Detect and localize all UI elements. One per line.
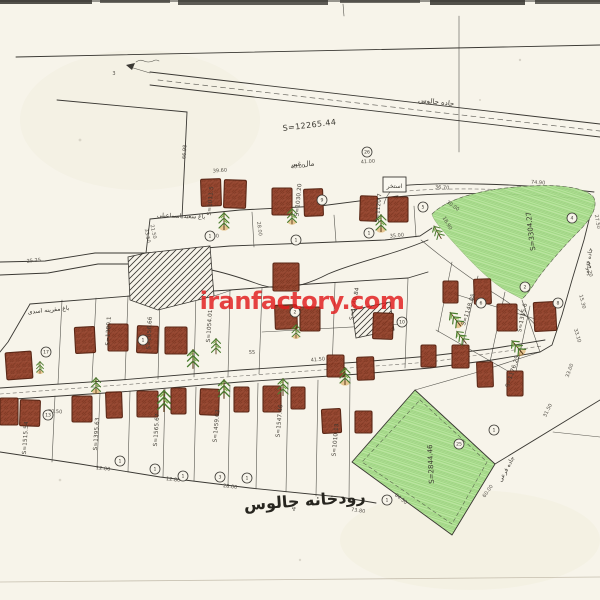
- building: [477, 362, 494, 388]
- building: [165, 327, 187, 354]
- plot-number-text: 1: [493, 428, 496, 434]
- dimension-label: 3: [112, 71, 115, 77]
- others-property-label: مال غیر: [291, 160, 315, 168]
- plot-number: 1: [382, 495, 392, 505]
- building: [373, 313, 394, 340]
- plot-number: 8: [553, 298, 563, 308]
- building: [224, 180, 247, 209]
- plot-number-text: 2: [524, 285, 527, 291]
- plot-number: 2: [520, 282, 530, 292]
- plot-number: 1: [150, 464, 160, 474]
- plot-number: 3: [215, 472, 225, 482]
- watermark-text: iranfactory.com: [200, 287, 405, 315]
- plot-number-text: 17: [43, 350, 49, 356]
- scanned-cadastral-map: استخر 66.9821.5039.6040.0041.0036.7074.9…: [0, 0, 600, 600]
- plot-number-text: 1: [295, 238, 298, 244]
- plot-number: 9: [317, 195, 327, 205]
- plot-number: 4: [567, 213, 577, 223]
- plot-number: 13: [43, 410, 53, 420]
- building: [74, 326, 95, 353]
- plot-number-text: 25: [456, 442, 462, 448]
- plot-number: 25: [454, 439, 464, 449]
- dimension-label: 41.00: [361, 159, 376, 166]
- plot-number-text: 1: [386, 498, 389, 504]
- building: [497, 304, 517, 331]
- building: [234, 387, 249, 412]
- plot-number-text: 1: [142, 338, 145, 344]
- plot-number: 5: [418, 202, 428, 212]
- building: [171, 388, 186, 414]
- plot-number: 6: [476, 298, 486, 308]
- building: [272, 188, 292, 215]
- plot-number: 1: [489, 425, 499, 435]
- plot-number-text: 3: [219, 475, 222, 481]
- building: [421, 345, 436, 367]
- dimension-label: 36.70: [435, 185, 450, 192]
- plot-number-text: 1: [368, 231, 371, 237]
- dimension-label: 35.00: [390, 232, 405, 239]
- building: [327, 355, 344, 377]
- plot-number-text: 1: [246, 476, 249, 482]
- dimension-label: 66.98: [182, 145, 189, 160]
- plot-number-text: 8: [557, 301, 560, 307]
- map-canvas: استخر 66.9821.5039.6040.0041.0036.7074.9…: [0, 0, 600, 600]
- pool-box: استخر: [383, 177, 406, 192]
- building: [357, 357, 375, 381]
- dimension-label: 74.90: [531, 180, 546, 187]
- plot-number-text: 6: [480, 301, 483, 307]
- building: [355, 411, 372, 433]
- building: [5, 351, 33, 380]
- plot-number: 1: [205, 231, 215, 241]
- plot-number: 1: [364, 228, 374, 238]
- plot-number: 26: [362, 147, 372, 157]
- dimension-label: 39.60: [213, 168, 228, 175]
- plot-number-text: 1: [209, 234, 212, 240]
- plot-number-text: 1: [119, 459, 122, 465]
- plot-number-text: 1: [154, 467, 157, 473]
- plot-number-text: 10: [399, 320, 405, 326]
- plot-number-text: 1: [182, 474, 185, 480]
- plot-number-text: 5: [422, 205, 425, 211]
- plot-number-text: 13: [45, 413, 51, 419]
- building: [0, 398, 18, 425]
- building: [452, 345, 469, 368]
- plot-number: 1: [291, 235, 301, 245]
- pool-label: استخر: [386, 183, 403, 190]
- plot-number-text: 4: [571, 216, 574, 222]
- building: [533, 301, 556, 331]
- plot-number-text: 9: [321, 198, 324, 204]
- building: [137, 391, 158, 417]
- plot-number: 1: [242, 473, 252, 483]
- plot-number: 1: [115, 456, 125, 466]
- dimension-label: 41.50: [311, 356, 326, 363]
- building: [388, 197, 408, 222]
- building: [106, 392, 123, 419]
- building: [72, 396, 92, 422]
- building: [291, 387, 305, 409]
- dimension-label: 55: [249, 350, 255, 356]
- plot-number: 1: [138, 335, 148, 345]
- plot-number: 1: [178, 471, 188, 481]
- plot-number-text: 26: [364, 150, 370, 156]
- plot-number: 17: [41, 347, 51, 357]
- building: [443, 281, 458, 303]
- plot-number: 10: [397, 317, 407, 327]
